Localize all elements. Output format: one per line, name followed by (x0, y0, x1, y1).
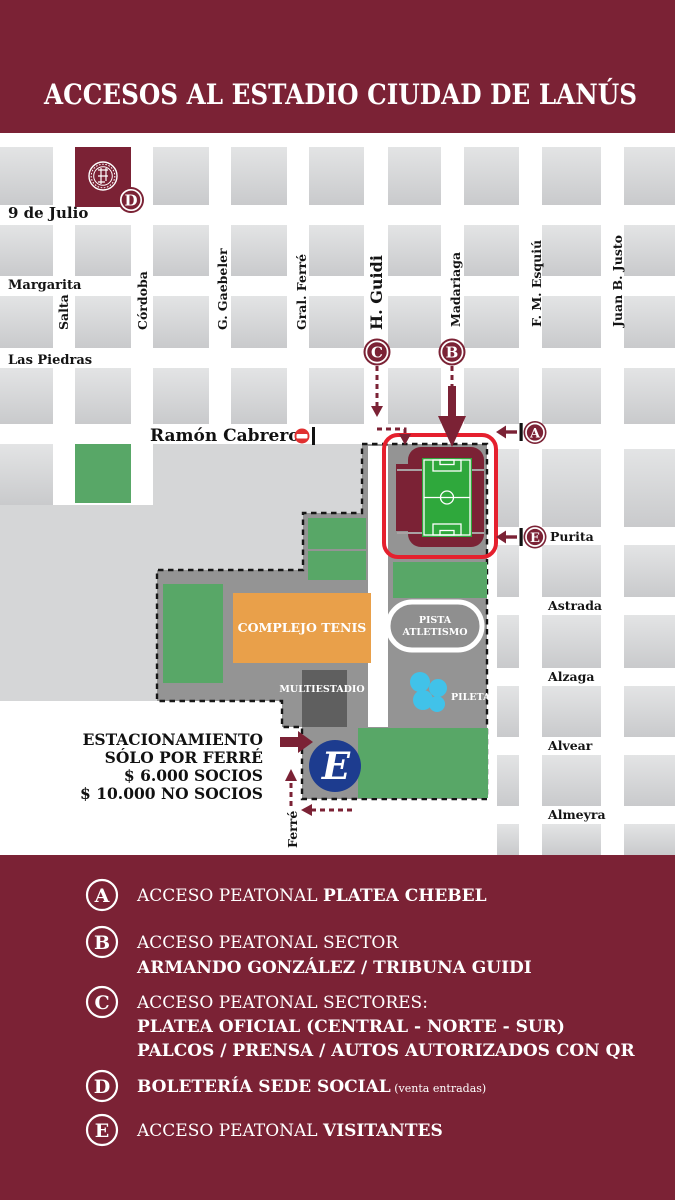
city-block (309, 296, 364, 348)
svg-text:$ 10.000 NO SOCIOS: $ 10.000 NO SOCIOS (80, 784, 263, 803)
city-block (464, 147, 519, 205)
city-block (624, 755, 675, 806)
street-label-cordoba: Córdoba (135, 271, 150, 330)
city-block (309, 225, 364, 276)
marker-c: C (364, 339, 391, 366)
svg-text:$ 6.000 SOCIOS: $ 6.000 SOCIOS (124, 766, 263, 785)
city-block (542, 368, 601, 424)
city-block (0, 147, 53, 205)
city-block (624, 296, 675, 348)
city-block (497, 615, 519, 668)
street-label-h-guidi: H. Guidi (367, 255, 386, 330)
stadium-west-stand (396, 464, 412, 531)
green-area (308, 518, 366, 549)
street-label-alvear: Alvear (547, 738, 593, 753)
legend-text-a: ACCESO PEATONAL PLATEA CHEBEL (136, 886, 487, 906)
street-label-almeyra: Almeyra (547, 807, 606, 822)
parking-entrance-marker: E (309, 740, 361, 792)
legend-text-c-line1: ACCESO PEATONAL SECTORES: (136, 993, 428, 1013)
svg-text:E: E (95, 1120, 109, 1142)
svg-text:ESTACIONAMIENTO: ESTACIONAMIENTO (83, 730, 263, 749)
legend-text-c-line3: PALCOS / PRENSA / AUTOS AUTORIZADOS CON … (137, 1041, 635, 1061)
legend-text-b-line1: ACCESO PEATONAL SECTOR (136, 933, 399, 953)
city-block (497, 686, 519, 737)
street-label-ferre: Ferré (285, 811, 300, 848)
city-block (542, 824, 601, 855)
tennis-complex-label: COMPLEJO TENIS (238, 620, 367, 635)
marker-b: B (439, 339, 466, 366)
multiestadio-building (302, 670, 347, 727)
svg-text:SÓLO POR FERRÉ: SÓLO POR FERRÉ (105, 748, 264, 767)
city-block (624, 449, 675, 527)
svg-text:D: D (94, 1076, 110, 1098)
street-label-purita: Purita (550, 529, 594, 544)
city-block (231, 225, 287, 276)
city-block (0, 296, 53, 348)
city-block (0, 444, 53, 505)
street-label-madariaga: Madariaga (448, 252, 463, 327)
city-block (153, 147, 209, 205)
city-block (464, 368, 519, 424)
city-block (624, 225, 675, 276)
city-block (0, 225, 53, 276)
green-area (308, 551, 366, 580)
svg-text:C: C (371, 344, 383, 362)
street-label-juan-b-justo: Juan B. Justo (610, 235, 625, 328)
street-label-astrada: Astrada (547, 598, 602, 613)
stadium-access-poster: ACCESOS AL ESTADIO CIUDAD DE LANÚS COMPL… (0, 0, 675, 1200)
city-block (309, 368, 364, 424)
city-block (624, 824, 675, 855)
city-block (388, 368, 441, 424)
city-block (497, 755, 519, 806)
svg-text:C: C (94, 992, 109, 1014)
city-block (153, 225, 209, 276)
athletics-track (388, 602, 482, 650)
city-block (542, 225, 601, 276)
city-block (231, 147, 287, 205)
marker-d: D (118, 187, 144, 213)
city-block (497, 824, 519, 855)
parking-note: ESTACIONAMIENTO SÓLO POR FERRÉ $ 6.000 S… (80, 730, 263, 803)
city-block (0, 368, 53, 424)
city-block (388, 147, 441, 205)
city-block (542, 686, 601, 737)
city-block (153, 368, 209, 424)
multiestadio-label: MULTIESTADIO (279, 684, 364, 695)
city-block (542, 449, 601, 527)
svg-text:B: B (446, 344, 459, 362)
athletics-track-label-2: ATLETISMO (401, 627, 467, 638)
pool-label: PILETA (451, 692, 491, 703)
legend-text-b-line2: ARMANDO GONZÁLEZ / TRIBUNA GUIDI (136, 957, 532, 978)
street-label-alzaga: Alzaga (547, 669, 594, 684)
street-label-margarita: Margarita (8, 278, 82, 293)
city-block (542, 545, 601, 597)
city-block (388, 296, 441, 348)
legend-text-c-line2: PLATEA OFICIAL (CENTRAL - NORTE - SUR) (137, 1017, 565, 1037)
street-label-esquiu: F. M. Esquiú (529, 240, 544, 327)
city-block (464, 225, 519, 276)
city-block (75, 296, 131, 348)
city-block (624, 368, 675, 424)
svg-text:B: B (94, 932, 110, 954)
no-entry-icon (295, 429, 310, 444)
city-block (231, 368, 287, 424)
city-block (309, 147, 364, 205)
city-block (624, 615, 675, 668)
city-block (542, 755, 601, 806)
city-block (542, 296, 601, 348)
marker-e: E (524, 526, 547, 549)
svg-text:A: A (94, 885, 110, 907)
street-label-salta: Salta (56, 294, 71, 330)
parking-green-area (358, 728, 488, 798)
city-block (497, 449, 519, 527)
street-label-gral-ferre: Gral. Ferré (294, 254, 309, 330)
city-block (464, 296, 519, 348)
city-block (624, 545, 675, 597)
park-block (75, 444, 131, 503)
city-block (388, 225, 441, 276)
street-label-gaebeler: G. Gaebeler (215, 248, 230, 330)
city-block (231, 296, 287, 348)
street-closed-bar (312, 427, 315, 445)
street-label-las-piedras: Las Piedras (8, 353, 92, 368)
athletics-track-label-1: PISTA (419, 615, 452, 626)
city-block (497, 545, 519, 597)
city-block (542, 147, 601, 205)
city-block (75, 225, 131, 276)
city-block (153, 296, 209, 348)
marker-a: A (524, 421, 547, 444)
header-banner (0, 0, 675, 133)
page-title: ACCESOS AL ESTADIO CIUDAD DE LANÚS (43, 77, 637, 111)
city-block (75, 368, 131, 424)
green-area (163, 584, 223, 683)
city-block (624, 147, 675, 205)
city-block (624, 686, 675, 737)
svg-text:D: D (124, 192, 137, 210)
legend-text-e: ACCESO PEATONAL VISITANTES (136, 1121, 443, 1141)
green-area (393, 562, 487, 598)
svg-text:E: E (321, 744, 351, 788)
city-block (542, 615, 601, 668)
svg-text:A: A (529, 427, 541, 442)
street-label-ramon-cabrero: Ramón Cabrero (150, 426, 300, 446)
svg-text:E: E (530, 531, 540, 546)
